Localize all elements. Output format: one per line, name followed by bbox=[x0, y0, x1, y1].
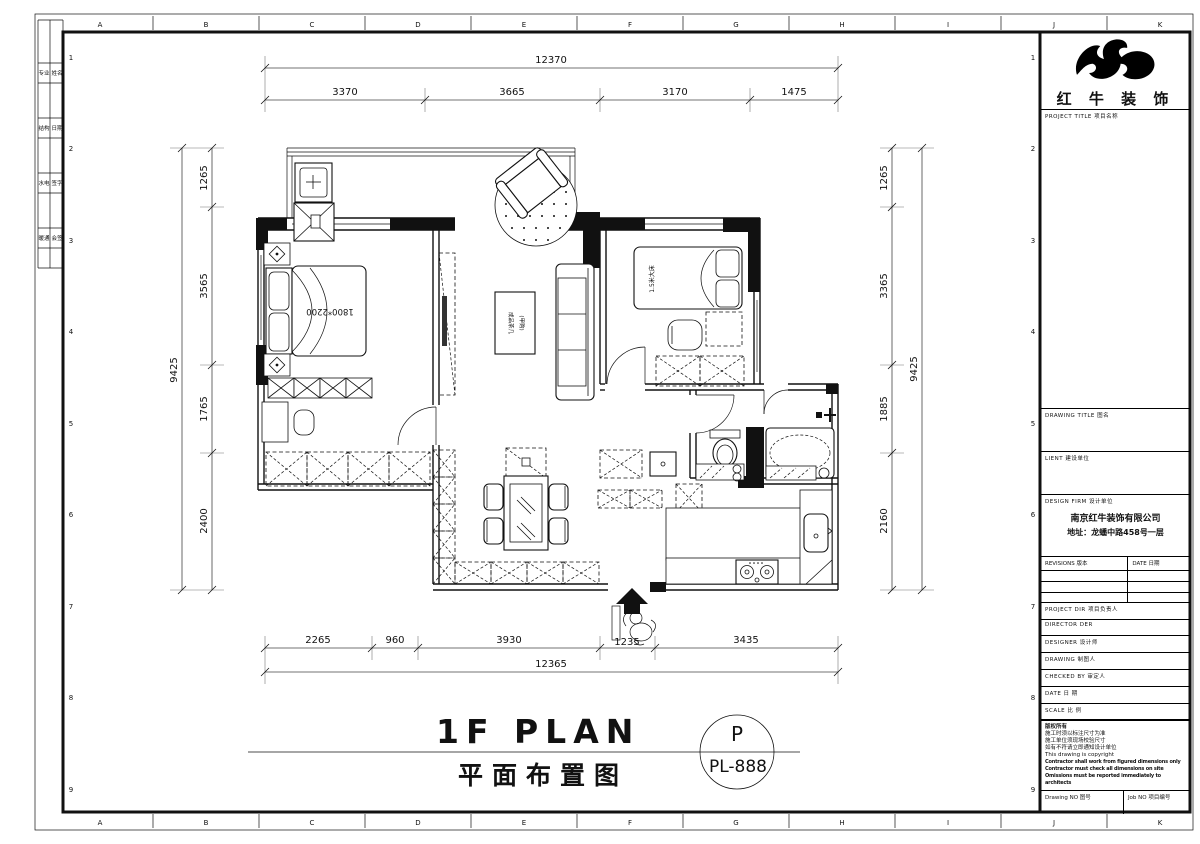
svg-text:F: F bbox=[628, 21, 632, 29]
master-wardrobe bbox=[266, 452, 430, 486]
svg-text:5: 5 bbox=[1031, 420, 1035, 428]
svg-text:2160: 2160 bbox=[879, 508, 890, 533]
svg-text:E: E bbox=[522, 21, 526, 29]
coffee-table: 成品茶几 (甲购) bbox=[495, 292, 535, 354]
svg-text:成品茶几: 成品茶几 bbox=[507, 312, 515, 335]
svg-text:F: F bbox=[628, 819, 632, 827]
svg-text:C: C bbox=[310, 21, 315, 29]
svg-text:9: 9 bbox=[1031, 786, 1035, 794]
svg-text:D: D bbox=[415, 819, 420, 827]
svg-text:12365: 12365 bbox=[535, 659, 567, 670]
tv-unit bbox=[439, 253, 455, 395]
drawing-by-row: DRAWING 制图人 bbox=[1041, 653, 1190, 670]
drawing-no-label: Drawing NO 图号 bbox=[1041, 791, 1123, 814]
dresser-row bbox=[268, 378, 372, 398]
second-wardrobe bbox=[656, 356, 744, 386]
washing-machine bbox=[295, 163, 332, 202]
nightstand-top bbox=[264, 243, 290, 265]
svg-text:1765: 1765 bbox=[199, 396, 210, 421]
copyright-line: 如有不符请立即通知设计单位 bbox=[1045, 745, 1186, 752]
svg-text:H: H bbox=[839, 21, 844, 29]
copyright-line-bold: Contractor shall work from figured dimen… bbox=[1045, 759, 1186, 766]
copyright-line-bold: Omissions must be reported immediately t… bbox=[1045, 773, 1186, 787]
copyright-line: 施工单位须现场校验尺寸 bbox=[1045, 738, 1186, 745]
svg-text:1235: 1235 bbox=[614, 637, 639, 648]
svg-text:1265: 1265 bbox=[879, 165, 890, 190]
svg-text:水电: 水电 bbox=[38, 179, 50, 187]
plan-title-cn: 平面布置图 bbox=[458, 756, 628, 792]
svg-text:3370: 3370 bbox=[332, 87, 357, 98]
svg-text:3930: 3930 bbox=[496, 635, 521, 646]
dining-table bbox=[504, 476, 548, 550]
grid-ruler-top: A B C D E F G H I J K bbox=[98, 16, 1163, 30]
client-label: LIENT 建设单位 bbox=[1041, 452, 1190, 462]
svg-text:专业: 专业 bbox=[38, 69, 50, 77]
svg-text:3: 3 bbox=[69, 237, 73, 245]
svg-text:6: 6 bbox=[69, 511, 74, 519]
door-bathroom bbox=[696, 395, 734, 433]
revisions-section: REVISIONS 版本 DATE 日期 bbox=[1041, 557, 1190, 603]
master-bed: 1800*2200 bbox=[266, 266, 366, 356]
svg-text:B: B bbox=[204, 819, 209, 827]
svg-text:8: 8 bbox=[1031, 694, 1035, 702]
svg-text:4: 4 bbox=[1031, 328, 1036, 336]
svg-text:3365: 3365 bbox=[879, 273, 890, 298]
svg-text:1: 1 bbox=[69, 54, 73, 62]
grid-numbers-right: 1 2 3 4 5 6 7 8 9 bbox=[1031, 54, 1036, 794]
company-logo-section: 红 牛 装 饰 bbox=[1041, 32, 1190, 110]
svg-text:会签: 会签 bbox=[51, 234, 63, 242]
plan-title-en: 1F PLAN bbox=[436, 712, 640, 751]
svg-text:G: G bbox=[733, 21, 738, 29]
copyright-line: 施工时须以标注尺寸为准 bbox=[1045, 731, 1186, 738]
director-row: DIRECTOR DER bbox=[1041, 620, 1190, 636]
svg-text:7: 7 bbox=[69, 603, 73, 611]
door-bedroom1 bbox=[398, 407, 436, 445]
svg-text:J: J bbox=[1052, 21, 1055, 29]
bath-vanity bbox=[696, 464, 744, 481]
drawing-sheet: A B C D E F G H I J K A B C D E F G H I … bbox=[0, 0, 1200, 844]
svg-text:5: 5 bbox=[69, 420, 73, 428]
nightstand-bottom bbox=[264, 354, 290, 376]
svg-text:9425: 9425 bbox=[169, 357, 180, 382]
grid-numbers-left: 1 2 3 4 5 6 7 8 9 bbox=[69, 54, 74, 794]
svg-text:2: 2 bbox=[69, 145, 73, 153]
drawing-title-label: DRAWING TITLE 图名 bbox=[1041, 409, 1190, 419]
svg-text:2265: 2265 bbox=[305, 635, 330, 646]
svg-text:3: 3 bbox=[1031, 237, 1035, 245]
stove bbox=[736, 560, 778, 584]
svg-text:2400: 2400 bbox=[199, 508, 210, 533]
svg-text:签字: 签字 bbox=[51, 179, 63, 187]
svg-text:2: 2 bbox=[1031, 145, 1035, 153]
design-firm-section: DESIGN FIRM 设计单位 南京红牛装饰有限公司 地址：龙蟠中路458号一… bbox=[1041, 495, 1190, 557]
revision-date-label: DATE 日期 bbox=[1127, 557, 1190, 570]
svg-text:J: J bbox=[1052, 819, 1055, 827]
svg-text:9: 9 bbox=[69, 786, 73, 794]
door-bedroom2 bbox=[607, 347, 645, 384]
svg-text:1.5米大床: 1.5米大床 bbox=[648, 265, 656, 293]
svg-text:1: 1 bbox=[1031, 54, 1035, 62]
svg-text:A: A bbox=[98, 819, 103, 827]
water-heater-symbol bbox=[816, 408, 836, 422]
svg-text:K: K bbox=[1158, 819, 1163, 827]
svg-text:1475: 1475 bbox=[781, 87, 806, 98]
svg-text:8: 8 bbox=[69, 694, 73, 702]
firm-name: 南京红牛装饰有限公司 bbox=[1041, 511, 1190, 524]
svg-text:1885: 1885 bbox=[879, 396, 890, 421]
project-dir-row: PROJECT DIR 项目负责人 bbox=[1041, 603, 1190, 620]
svg-text:960: 960 bbox=[385, 635, 404, 646]
svg-text:(甲购): (甲购) bbox=[518, 315, 526, 330]
client-section: LIENT 建设单位 bbox=[1041, 452, 1190, 495]
revision-row bbox=[1041, 581, 1190, 592]
svg-text:9425: 9425 bbox=[909, 356, 920, 381]
checked-by-row: CHECKED BY 审定人 bbox=[1041, 670, 1190, 687]
brand-name: 红 牛 装 饰 bbox=[1041, 88, 1190, 109]
svg-text:3435: 3435 bbox=[733, 635, 758, 646]
svg-text:E: E bbox=[522, 819, 526, 827]
copyright-line-bold: Contractor must check all dimensions on … bbox=[1045, 766, 1186, 773]
revisions-label: REVISIONS 版本 bbox=[1041, 557, 1127, 570]
kitchen-sink bbox=[804, 514, 832, 552]
svg-text:日期: 日期 bbox=[51, 125, 63, 132]
numbers-section: Drawing NO 图号 Job NO 项目编号 bbox=[1041, 791, 1190, 814]
designer-row: DESIGNER 设计师 bbox=[1041, 636, 1190, 653]
svg-text:G: G bbox=[733, 819, 738, 827]
project-title-section: PROJECT TITLE 项目名称 bbox=[1041, 110, 1190, 409]
svg-text:A: A bbox=[98, 21, 103, 29]
job-no-label: Job NO 项目编号 bbox=[1123, 791, 1190, 814]
svg-text:K: K bbox=[1158, 21, 1163, 29]
stamp-code: PL-888 bbox=[698, 757, 778, 777]
dining-cabinet bbox=[506, 448, 546, 478]
scale-row: SCALE 比 例 bbox=[1041, 704, 1190, 721]
svg-text:1800*2200: 1800*2200 bbox=[306, 306, 354, 316]
svg-text:H: H bbox=[839, 819, 844, 827]
second-nightstand bbox=[668, 312, 742, 350]
svg-text:3170: 3170 bbox=[662, 87, 687, 98]
copyright-line: This drawing is copyright bbox=[1045, 752, 1186, 759]
svg-text:6: 6 bbox=[1031, 511, 1036, 519]
svg-text:姓名: 姓名 bbox=[51, 69, 62, 77]
signoff-strip: 专业 姓名 结构 日期 水电 签字 暖通 会签 bbox=[38, 20, 63, 268]
revision-row bbox=[1041, 570, 1190, 581]
svg-text:3665: 3665 bbox=[499, 87, 524, 98]
svg-text:暖通: 暖通 bbox=[38, 234, 50, 242]
svg-text:结构: 结构 bbox=[38, 124, 50, 132]
drawing-title-section: DRAWING TITLE 图名 bbox=[1041, 409, 1190, 452]
svg-text:1265: 1265 bbox=[199, 165, 210, 190]
toilet bbox=[710, 430, 740, 467]
sofa bbox=[556, 264, 594, 400]
balcony-cabinet bbox=[294, 203, 334, 241]
svg-text:C: C bbox=[310, 819, 315, 827]
copyright-section: 版权所有 施工时须以标注尺寸为准 施工单位须现场校验尺寸 如有不符请立即通知设计… bbox=[1041, 721, 1190, 791]
stamp-letter: P bbox=[700, 722, 774, 746]
firm-address: 地址：龙蟠中路458号一层 bbox=[1041, 527, 1190, 538]
second-bed: 1.5米大床 bbox=[634, 247, 742, 309]
revision-row bbox=[1041, 592, 1190, 603]
project-title-label: PROJECT TITLE 项目名称 bbox=[1041, 110, 1190, 120]
master-desk bbox=[262, 402, 314, 442]
copyright-line: 版权所有 bbox=[1045, 724, 1186, 731]
svg-text:D: D bbox=[415, 21, 420, 29]
svg-text:12370: 12370 bbox=[535, 55, 567, 66]
svg-text:3565: 3565 bbox=[199, 273, 210, 298]
title-block: 红 牛 装 饰 PROJECT TITLE 项目名称 DRAWING TITLE… bbox=[1041, 32, 1190, 812]
bull-logo-icon bbox=[1068, 34, 1164, 86]
door-bathtub-room bbox=[764, 390, 788, 414]
svg-text:I: I bbox=[947, 819, 949, 827]
hall-cabinets bbox=[598, 450, 702, 512]
storage-row bbox=[455, 562, 599, 584]
svg-text:4: 4 bbox=[69, 328, 74, 336]
entry-arrow-icon bbox=[616, 588, 648, 614]
grid-ruler-bottom: A B C D E F G H I J K bbox=[98, 814, 1163, 828]
storage-column bbox=[433, 450, 455, 584]
svg-text:B: B bbox=[204, 21, 209, 29]
svg-text:I: I bbox=[947, 21, 949, 29]
svg-text:7: 7 bbox=[1031, 603, 1035, 611]
design-firm-label: DESIGN FIRM 设计单位 bbox=[1041, 495, 1190, 505]
date-row: DATE 日 期 bbox=[1041, 687, 1190, 704]
